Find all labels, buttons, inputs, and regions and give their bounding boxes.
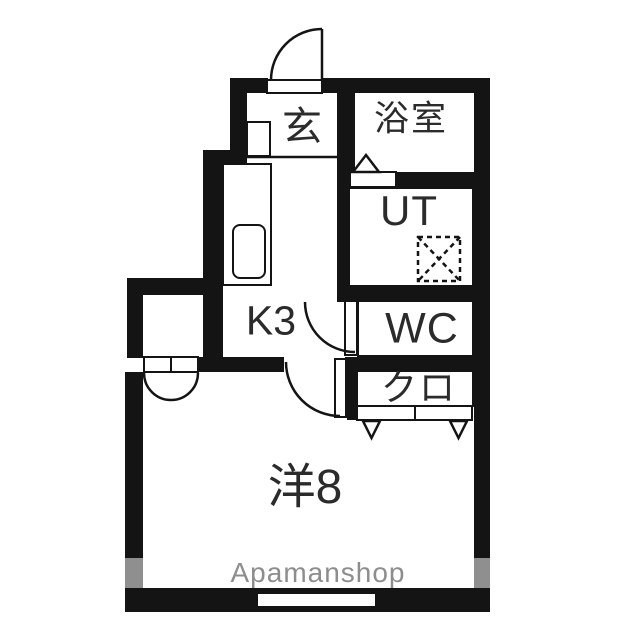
room-label-closet: クロ (381, 370, 457, 406)
room-door-arc-icon (286, 362, 340, 416)
washer-placement-cross-icon (418, 237, 460, 281)
room-label-kitchen: K3 (246, 301, 296, 342)
door-swing-symbols (0, 0, 640, 640)
alcove-door-arc-right-icon (171, 373, 198, 400)
wc-door-arc-icon (305, 302, 355, 352)
watermark: Apamanshop (230, 559, 405, 587)
floorplan: 玄 浴室 UT WC クロ K3 洋8 Apamanshop (0, 0, 640, 640)
alcove-door-arc-left-icon (144, 373, 171, 400)
room-label-wc: WC (385, 308, 459, 351)
entrance-door-arc-icon (271, 29, 322, 80)
room-label-utility: UT (380, 190, 438, 232)
closet-door-triangle-right-icon (450, 421, 467, 438)
room-label-bathroom: 浴室 (374, 102, 448, 137)
bathroom-door-triangle-icon (353, 155, 379, 172)
room-label-western-room: 洋8 (268, 464, 343, 512)
room-label-genkan: 玄 (282, 107, 322, 147)
closet-door-triangle-left-icon (363, 421, 380, 438)
